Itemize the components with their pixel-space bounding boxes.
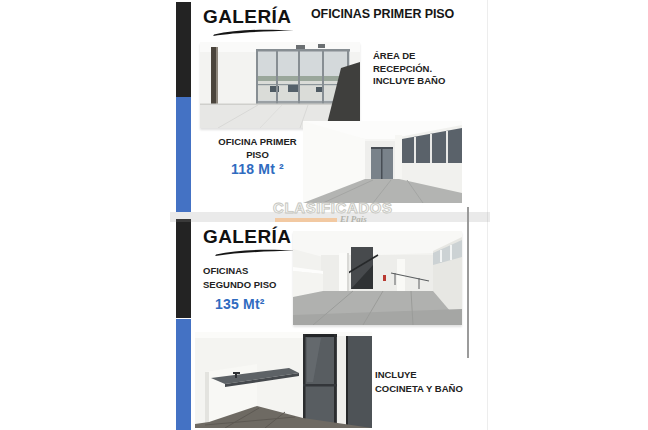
galeria-logo-top: GALERÍA: [203, 6, 291, 28]
accent-bar-blue-bottom: [176, 319, 191, 430]
page-title-first-floor: OFICINAS PRIMER PISO: [311, 7, 454, 21]
reception-note-line3: INCLUYE BAÑO: [373, 75, 445, 88]
reception-note-line2: RECEPCIÓN.: [373, 63, 445, 76]
office1-label-line1: OFICINA PRIMER: [205, 136, 310, 149]
area-value-first-floor: 118 Mt ²: [205, 163, 310, 176]
second-floor-label: OFICINAS SEGUNDO PISO: [203, 264, 276, 291]
office-size-label-first-floor: OFICINA PRIMER PISO 118 Mt ²: [205, 136, 310, 176]
kitchenette-note: INCLUYE COCINETA Y BAÑO: [375, 368, 463, 395]
area-value-second-floor: 135 Mt²: [215, 296, 265, 312]
watermark-underline: [275, 218, 337, 222]
galeria-logo-bottom: GALERÍA: [203, 226, 291, 248]
kitchenette-note-line2: COCINETA Y BAÑO: [375, 382, 463, 396]
reception-note: ÁREA DE RECEPCIÓN. INCLUYE BAÑO: [373, 50, 445, 88]
logo-swoosh-icon: [203, 28, 305, 36]
clasificados-watermark-text: CLASIFICADOS: [273, 199, 393, 216]
photo-reception: [200, 42, 360, 128]
office2-label-line1: OFICINAS: [203, 264, 276, 278]
photo-first-floor-office: [303, 121, 462, 203]
photo-second-floor-office: [293, 231, 462, 325]
office1-label-line2: PISO: [205, 149, 310, 162]
reception-note-line1: ÁREA DE: [373, 50, 445, 63]
kitchenette-note-line1: INCLUYE: [375, 368, 463, 382]
accent-bar-blue-top: [176, 97, 191, 212]
photo-kitchenette: [195, 332, 372, 428]
right-edge-line: [467, 207, 469, 358]
flyer-page: GALERÍA OFICINAS PRIMER PISO: [0, 0, 648, 430]
accent-bar-black-bottom: [176, 219, 191, 318]
accent-bar-black-top: [176, 2, 191, 97]
office2-label-line2: SEGUNDO PISO: [203, 278, 276, 292]
elpais-brand: El País: [340, 214, 367, 224]
